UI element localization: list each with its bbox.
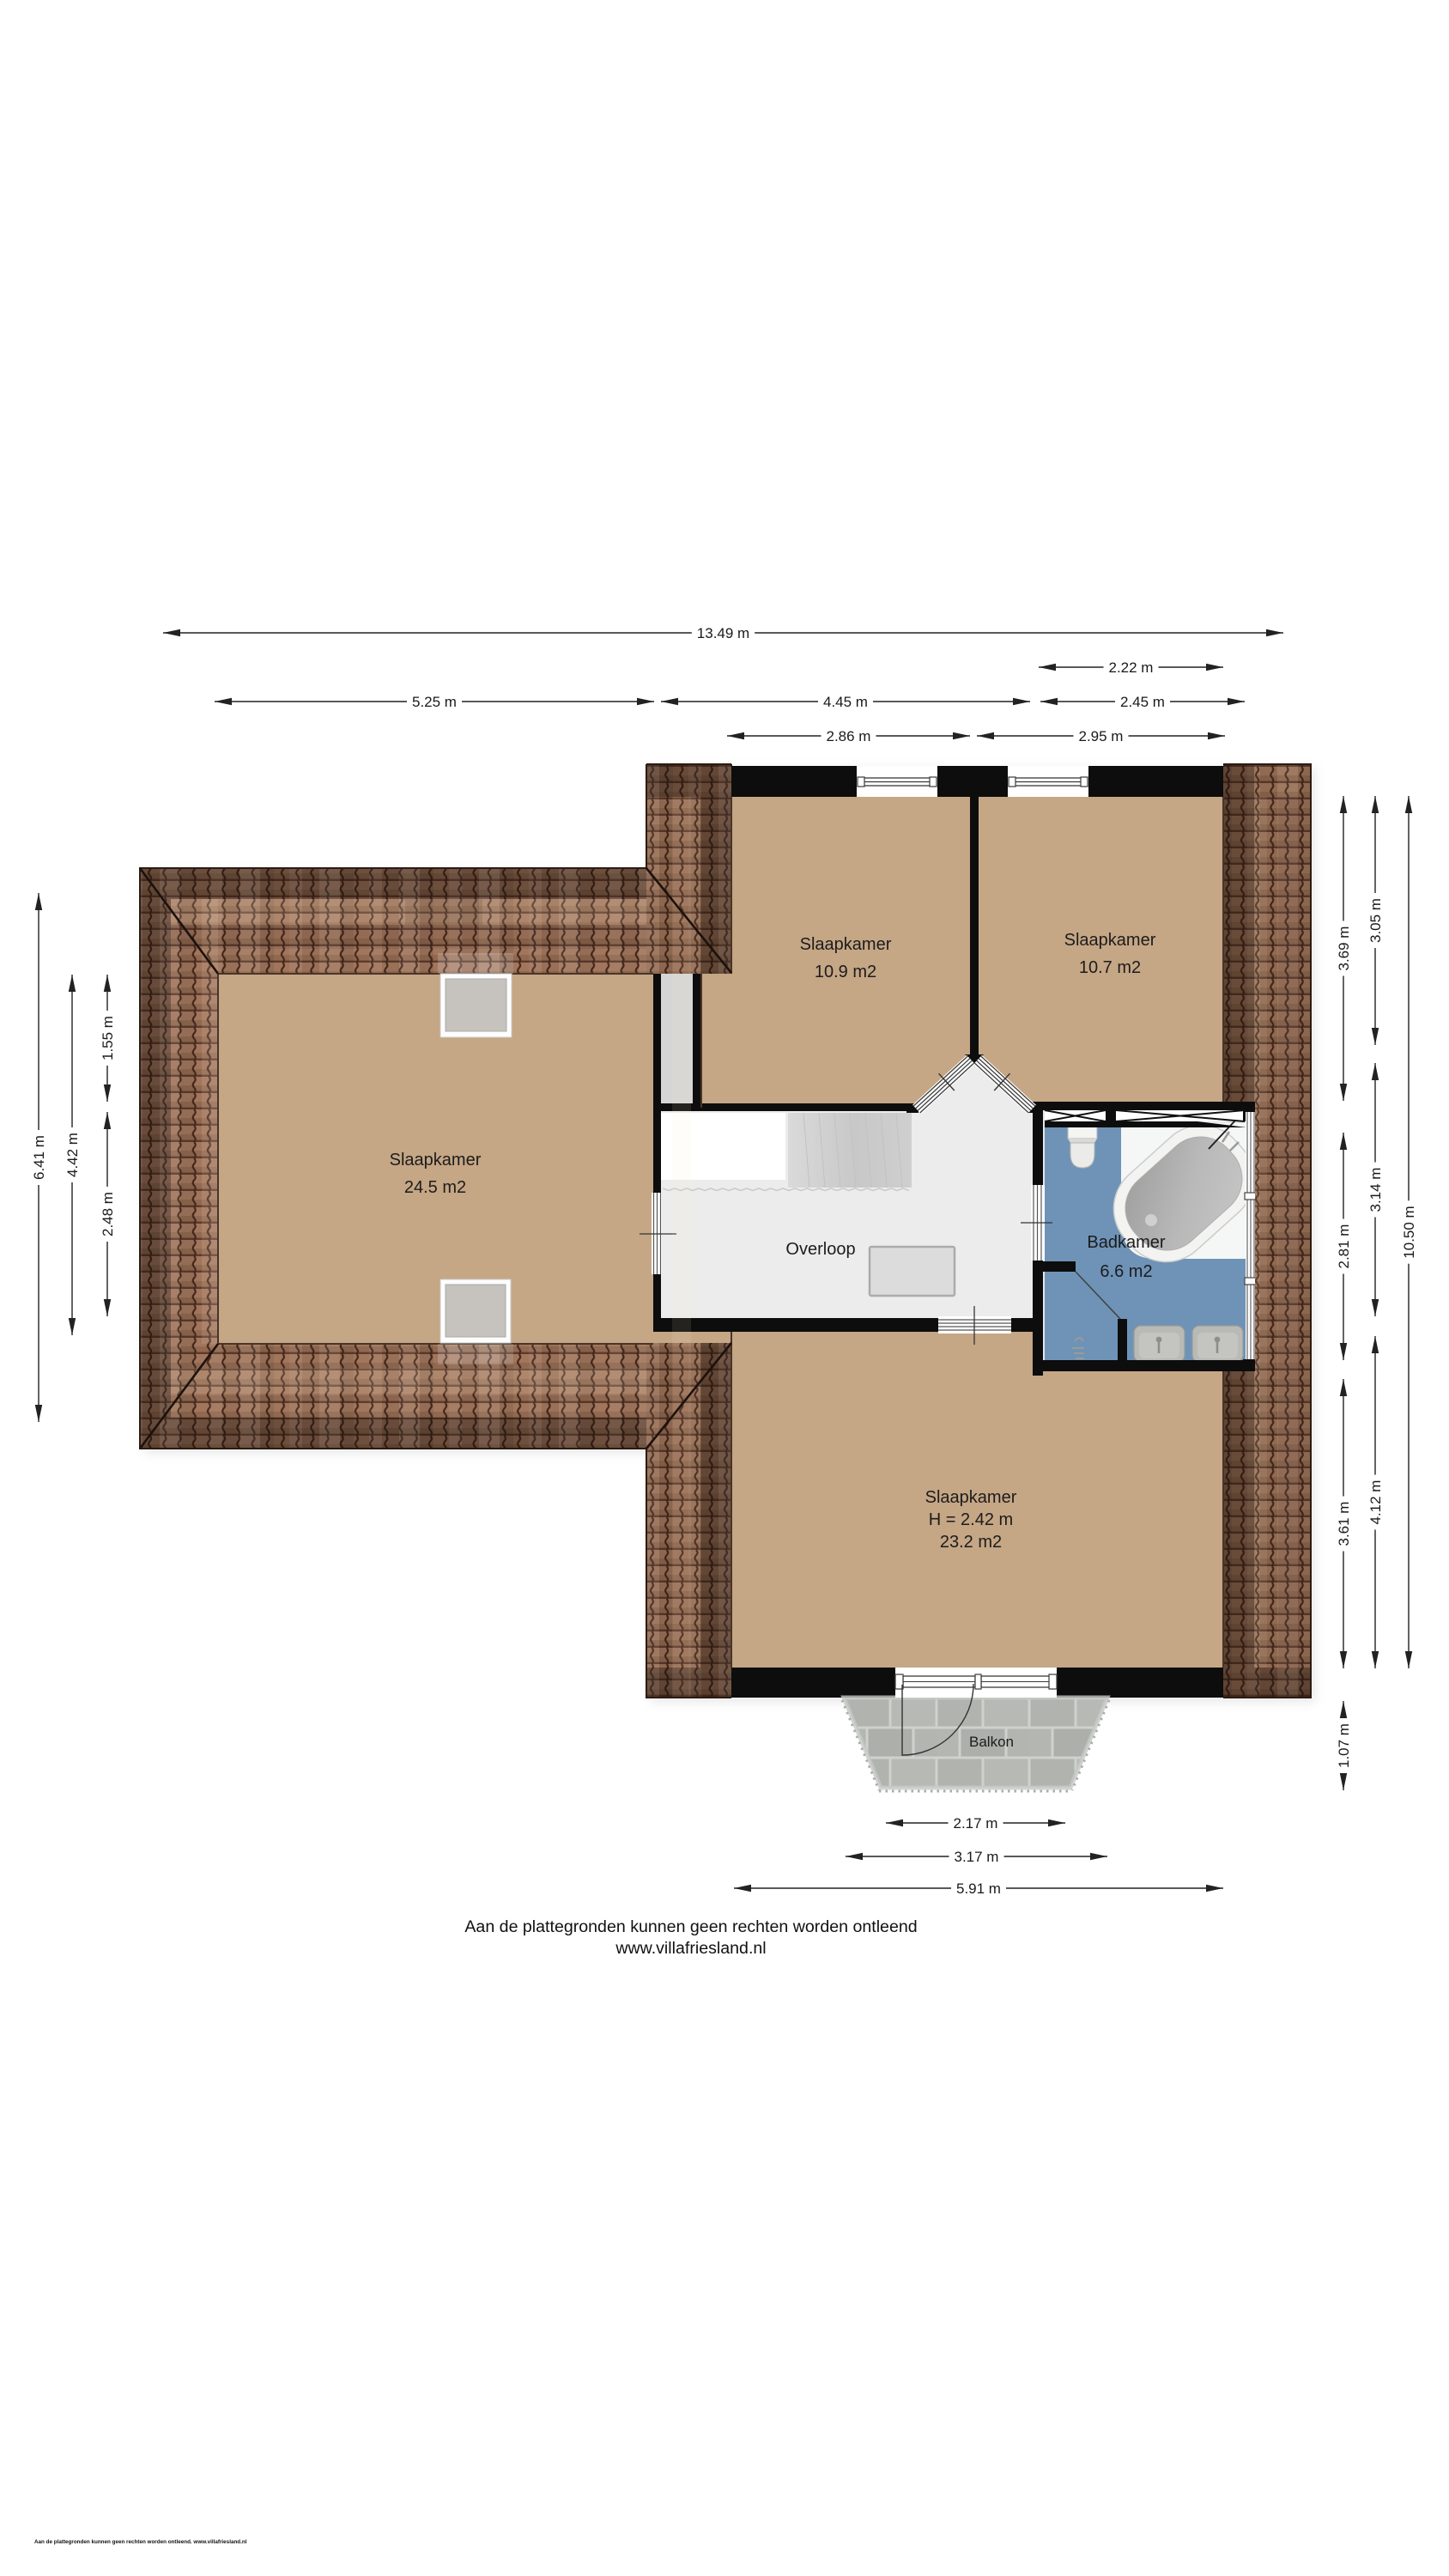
svg-text:10.9 m2: 10.9 m2 [815, 963, 876, 981]
svg-text:Slaapkamer: Slaapkamer [390, 1151, 482, 1170]
svg-text:6.41 m: 6.41 m [31, 1135, 47, 1180]
svg-text:Aan de plattegronden kunnen ge: Aan de plattegronden kunnen geen rechten… [464, 1917, 917, 1936]
svg-text:1.55 m: 1.55 m [100, 1016, 116, 1060]
svg-text:4.45 m: 4.45 m [823, 694, 868, 710]
svg-text:Aan de plattegronden kunnen ge: Aan de plattegronden kunnen geen rechten… [34, 2539, 247, 2545]
svg-text:3.14 m: 3.14 m [1367, 1168, 1384, 1212]
svg-text:4.42 m: 4.42 m [64, 1133, 81, 1177]
svg-text:3.05 m: 3.05 m [1367, 898, 1384, 943]
svg-text:3.61 m: 3.61 m [1336, 1502, 1352, 1546]
svg-text:4.12 m: 4.12 m [1367, 1480, 1384, 1525]
svg-text:Overloop: Overloop [785, 1240, 855, 1259]
svg-text:10.7 m2: 10.7 m2 [1079, 958, 1141, 977]
svg-text:1.07 m: 1.07 m [1336, 1723, 1352, 1768]
svg-text:H = 2.42 m: H = 2.42 m [929, 1510, 1013, 1529]
svg-text:2.45 m: 2.45 m [1120, 694, 1165, 710]
svg-text:2.22 m: 2.22 m [1109, 659, 1154, 676]
svg-text:5.25 m: 5.25 m [412, 694, 457, 710]
svg-text:Balkon: Balkon [969, 1734, 1014, 1750]
svg-text:2.86 m: 2.86 m [827, 728, 871, 744]
svg-text:2.81 m: 2.81 m [1336, 1224, 1352, 1269]
svg-text:Slaapkamer: Slaapkamer [1064, 931, 1156, 950]
svg-text:Badkamer: Badkamer [1087, 1233, 1165, 1252]
svg-text:23.2 m2: 23.2 m2 [940, 1533, 1002, 1552]
svg-text:www.villafriesland.nl: www.villafriesland.nl [615, 1939, 766, 1958]
svg-text:Slaapkamer: Slaapkamer [800, 935, 892, 954]
svg-text:2.48 m: 2.48 m [100, 1192, 116, 1236]
svg-text:3.17 m: 3.17 m [955, 1849, 999, 1865]
svg-text:10.50 m: 10.50 m [1401, 1206, 1417, 1258]
svg-text:Slaapkamer: Slaapkamer [925, 1488, 1017, 1507]
svg-text:13.49 m: 13.49 m [697, 625, 749, 641]
svg-text:24.5 m2: 24.5 m2 [404, 1178, 466, 1197]
svg-text:6.6 m2: 6.6 m2 [1100, 1262, 1152, 1281]
svg-text:2.95 m: 2.95 m [1079, 728, 1124, 744]
svg-text:3.69 m: 3.69 m [1336, 927, 1352, 971]
svg-text:5.91 m: 5.91 m [956, 1880, 1001, 1897]
svg-text:2.17 m: 2.17 m [954, 1815, 998, 1832]
